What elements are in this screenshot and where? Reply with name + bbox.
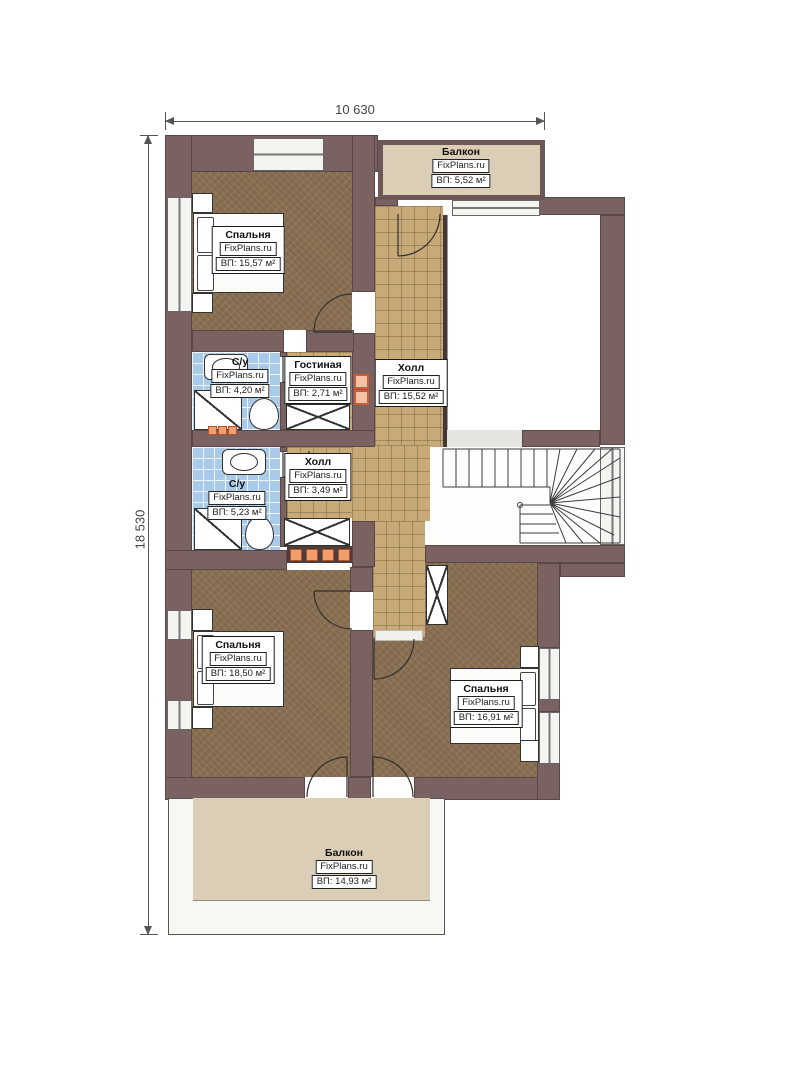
stairwell-floor (430, 447, 600, 545)
wall-segment (535, 197, 625, 215)
room-area: ВП: 18,50 м² (206, 667, 271, 681)
room-name: Балкон (323, 847, 365, 859)
shelf-cell (290, 549, 302, 561)
nightstand-symbol (192, 707, 213, 729)
shelf-unit (287, 546, 352, 563)
room-brand: FixPlans.ru (219, 242, 277, 256)
nightstand-symbol (192, 293, 213, 313)
pillow-symbol (520, 672, 536, 706)
wall-segment (352, 135, 375, 292)
room-area: ВП: 16,91 м² (454, 711, 519, 725)
dimension-height-label: 18 530 (133, 490, 148, 570)
room-area: ВП: 15,57 м² (216, 257, 281, 271)
room-name: Балкон (440, 146, 482, 158)
room-area: ВП: 2,71 м² (288, 387, 347, 401)
room-area: ВП: 3,49 м² (288, 484, 347, 498)
room-brand: FixPlans.ru (382, 375, 440, 389)
dimension-width-label: 10 630 (315, 102, 395, 117)
wall-segment (537, 698, 560, 712)
wardrobe-symbol (426, 565, 448, 625)
room-label-balcony-top: Балкон FixPlans.ru ВП: 5,52 м² (431, 146, 490, 188)
nightstand-symbol (520, 646, 539, 668)
door-threshold (375, 630, 423, 641)
room-brand: FixPlans.ru (211, 369, 269, 383)
valve-symbol (208, 426, 217, 435)
room-area: ВП: 14,93 м² (312, 875, 377, 889)
toilet-symbol (245, 516, 274, 550)
hall-void-divider (443, 215, 447, 447)
room-brand: FixPlans.ru (289, 469, 347, 483)
room-brand: FixPlans.ru (289, 372, 347, 386)
wall-segment (600, 215, 625, 445)
wall-segment (560, 563, 625, 577)
wall-segment (192, 330, 284, 352)
wall-segment (306, 330, 354, 352)
window (539, 648, 560, 700)
room-brand: FixPlans.ru (209, 652, 267, 666)
hall-main-floor (352, 445, 430, 521)
room-name: Холл (303, 456, 333, 468)
dimension-arrow (144, 135, 152, 144)
wall-segment (352, 521, 375, 567)
void-room-floor (447, 215, 598, 430)
room-brand: FixPlans.ru (432, 159, 490, 173)
room-label-balcony-bottom: Балкон FixPlans.ru ВП: 14,93 м² (312, 847, 377, 889)
hall-main-floor (373, 521, 425, 637)
sink-symbol (222, 449, 266, 475)
room-area: ВП: 15,52 м² (379, 390, 444, 404)
room-label-bathroom-1: С/у FixPlans.ru ВП: 4,20 м² (210, 356, 269, 398)
room-brand: FixPlans.ru (315, 860, 373, 874)
radiator-symbol (354, 390, 369, 405)
valve-symbol (228, 426, 237, 435)
wall-segment (165, 550, 287, 570)
room-brand: FixPlans.ru (208, 491, 266, 505)
room-label-bedroom-top: Спальня FixPlans.ru ВП: 15,57 м² (212, 226, 285, 274)
room-name: Спальня (213, 639, 262, 651)
wall-segment (522, 430, 600, 447)
room-label-bathroom-2: С/у FixPlans.ru ВП: 5,23 м² (207, 478, 266, 520)
pillow-symbol (520, 708, 536, 742)
room-name: Спальня (223, 229, 272, 241)
wardrobe-symbol (284, 518, 350, 546)
toilet-symbol (249, 398, 279, 430)
window (167, 610, 192, 640)
dimension-arrow (536, 117, 545, 125)
room-area: ВП: 5,52 м² (431, 174, 490, 188)
wall-segment (425, 545, 625, 563)
wall-segment (348, 777, 371, 800)
hall-main-floor (375, 206, 443, 447)
room-label-bedroom-right: Спальня FixPlans.ru ВП: 16,91 м² (450, 680, 523, 728)
window (600, 447, 625, 545)
bedroom-right-floor (373, 637, 425, 777)
shelf-cell (338, 549, 350, 561)
stair-landing (447, 430, 522, 447)
nightstand-symbol (192, 609, 213, 631)
nightstand-symbol (520, 740, 539, 762)
room-label-bedroom-left: Спальня FixPlans.ru ВП: 18,50 м² (202, 636, 275, 684)
window (167, 197, 192, 312)
room-name: С/у (227, 478, 247, 490)
room-name: Спальня (461, 683, 510, 695)
radiator-symbol (354, 374, 369, 389)
shelf-cell (306, 549, 318, 561)
room-label-living: Гостиная FixPlans.ru ВП: 2,71 м² (284, 356, 351, 404)
room-name: С/у (230, 356, 250, 368)
wall-segment (350, 567, 373, 592)
window (167, 700, 192, 730)
room-label-hall-small: Холл FixPlans.ru ВП: 3,49 м² (284, 453, 351, 501)
dimension-arrow (144, 926, 152, 935)
dimension-line-left (148, 135, 149, 935)
room-area: ВП: 4,20 м² (210, 384, 269, 398)
wall-segment (537, 762, 560, 800)
room-label-hall-main: Холл FixPlans.ru ВП: 15,52 м² (375, 359, 448, 407)
wall-segment (280, 447, 287, 452)
wall-segment (537, 563, 560, 648)
floor-plan: 10 630 18 530 (0, 0, 792, 1080)
room-brand: FixPlans.ru (457, 696, 515, 710)
dimension-line-top (165, 121, 545, 122)
room-area: ВП: 5,23 м² (207, 506, 266, 520)
wardrobe-symbol (286, 404, 350, 430)
window (452, 200, 540, 216)
shelf-cell (322, 549, 334, 561)
room-name: Гостиная (292, 359, 343, 371)
window (539, 712, 560, 764)
valve-symbol (218, 426, 227, 435)
window (253, 138, 324, 171)
dimension-arrow (165, 117, 174, 125)
wall-segment (350, 630, 373, 777)
nightstand-symbol (192, 193, 213, 213)
room-name: Холл (396, 362, 426, 374)
wall-segment (165, 777, 305, 800)
